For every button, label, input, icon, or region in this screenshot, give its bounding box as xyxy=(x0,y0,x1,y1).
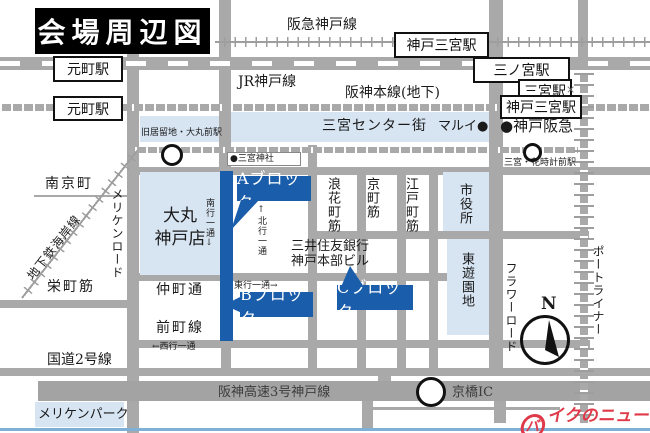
highlighted-oneway-road xyxy=(220,171,233,341)
venue-area-map: 元町駅 元町駅 神戸三宮駅 三ノ宮駅 三宮駅 神戸三宮駅 ●三宮神社 阪急神戸線… xyxy=(0,0,650,433)
nakamachi-label: 仲町通 xyxy=(156,283,204,297)
callout-block-a-label: Aブロック xyxy=(237,165,311,213)
callout-block-c-label: Cブロック xyxy=(337,274,413,322)
compass-north-label: N xyxy=(541,296,557,313)
hanadokei-station-label: 三宮・花時計前駅 xyxy=(504,159,576,168)
hankyu-line-label: 阪急神戸線 xyxy=(287,18,357,32)
subway-kaigan-line-horizontal xyxy=(135,147,578,153)
higashi-yuenchi-label: 東遊園地 xyxy=(460,252,473,308)
compass-circle xyxy=(520,315,570,365)
kaigan-line-label: 地下鉄海岸線 xyxy=(25,213,82,282)
station-box-motomachi-jr: 元町駅 xyxy=(53,56,123,82)
callout-block-a: Aブロック xyxy=(237,176,311,201)
callout-block-b-label: Bブロック xyxy=(240,281,313,329)
sannomiya-shrine-label: ●三宮神社 xyxy=(230,155,274,164)
flower-road-label: フラワーロード xyxy=(505,262,517,353)
oneway-south-label: 南行一通↓ xyxy=(204,198,213,249)
road-sakaemachi-suji xyxy=(0,300,128,308)
city-hall-label: 市役所 xyxy=(458,183,471,225)
kobe-hankyu-label: ●神戸阪急 xyxy=(500,119,573,134)
road-cityhall-south xyxy=(312,231,589,239)
kyukyoryuchi-station-label: 旧居留地・大丸前駅 xyxy=(141,129,222,138)
expressway-label: 阪神高速3号神戸線 xyxy=(218,386,330,399)
road-portliner-street-north xyxy=(578,0,588,57)
meriken-road-label: メリケンロード xyxy=(111,188,123,279)
daimaru-label-line2: 神戸店 xyxy=(155,229,206,249)
edomachi-label: 江戸町筋 xyxy=(404,177,417,233)
sakaemachi-label: 栄町筋 xyxy=(47,280,95,294)
road-ramp-stub-east xyxy=(494,401,506,423)
jr-line-label: JR神戸線 xyxy=(238,75,296,89)
daimaru-label-line1: 大丸 xyxy=(163,206,197,226)
kyomachi-label: 京町筋 xyxy=(365,177,378,219)
center-gai-label: 三宮センター街 xyxy=(322,119,427,133)
road-hanshin-expressway xyxy=(38,381,650,401)
road-route2 xyxy=(0,368,650,376)
kyobashi-ic-circle xyxy=(416,377,446,407)
station-box-kobe-sannomiya-hanshin: 神戸三宮駅 xyxy=(500,95,582,119)
callout-block-b: Bブロック xyxy=(240,292,313,317)
callout-block-c: Cブロック xyxy=(337,285,413,310)
kyukyoryuchi-station-circle xyxy=(161,144,183,166)
logo-oval-mark: バ xyxy=(519,414,548,433)
station-box-kobe-sannomiya-hankyu: 神戸三宮駅 xyxy=(394,32,489,58)
smbc-label-line1: 三井住友銀行 xyxy=(291,239,369,254)
station-label-motomachi-hanshin: 元町駅 xyxy=(67,99,109,119)
bike-no-news-logo: バ イクのニュース xyxy=(517,401,650,433)
station-label-kobe-sannomiya-hanshin: 神戸三宮駅 xyxy=(506,97,576,117)
maemachi-label: 前町線 xyxy=(156,321,204,335)
road-ramp-stub-west xyxy=(362,401,373,429)
station-box-motomachi-hanshin: 元町駅 xyxy=(53,96,123,121)
station-label-sannomiya-jr: 三ノ宮駅 xyxy=(494,60,550,80)
map-title: 会場周辺図 xyxy=(35,8,210,54)
road-koikawa-north xyxy=(219,0,231,168)
route2-label: 国道2号線 xyxy=(47,353,112,367)
portliner-label: ポートライナー xyxy=(592,245,604,336)
station-label-kobe-sannomiya-hankyu: 神戸三宮駅 xyxy=(407,35,477,55)
nankinmachi-label: 南京町 xyxy=(45,177,93,191)
oneway-north-label: ↑北行一通 xyxy=(256,205,265,256)
hanshin-line-label: 阪神本線(地下) xyxy=(345,86,440,100)
marui-label: マルイ● xyxy=(438,120,488,133)
oneway-west-label: ←西行一通 xyxy=(152,343,196,352)
line-end-mark: × xyxy=(566,84,575,95)
naniwamachi-label: 浪花町筋 xyxy=(326,177,339,233)
kyobashi-ic-label: 京橋IC xyxy=(452,386,493,399)
meriken-park-label: メリケンパーク xyxy=(38,408,129,421)
smbc-building-label: 三井住友銀行 神戸本部ビル xyxy=(291,239,369,269)
road-koikawa-south xyxy=(221,348,231,370)
logo-text: イクのニュース xyxy=(542,401,650,433)
station-label-motomachi-jr: 元町駅 xyxy=(67,59,109,79)
smbc-label-line2: 神戸本部ビル xyxy=(291,254,369,269)
